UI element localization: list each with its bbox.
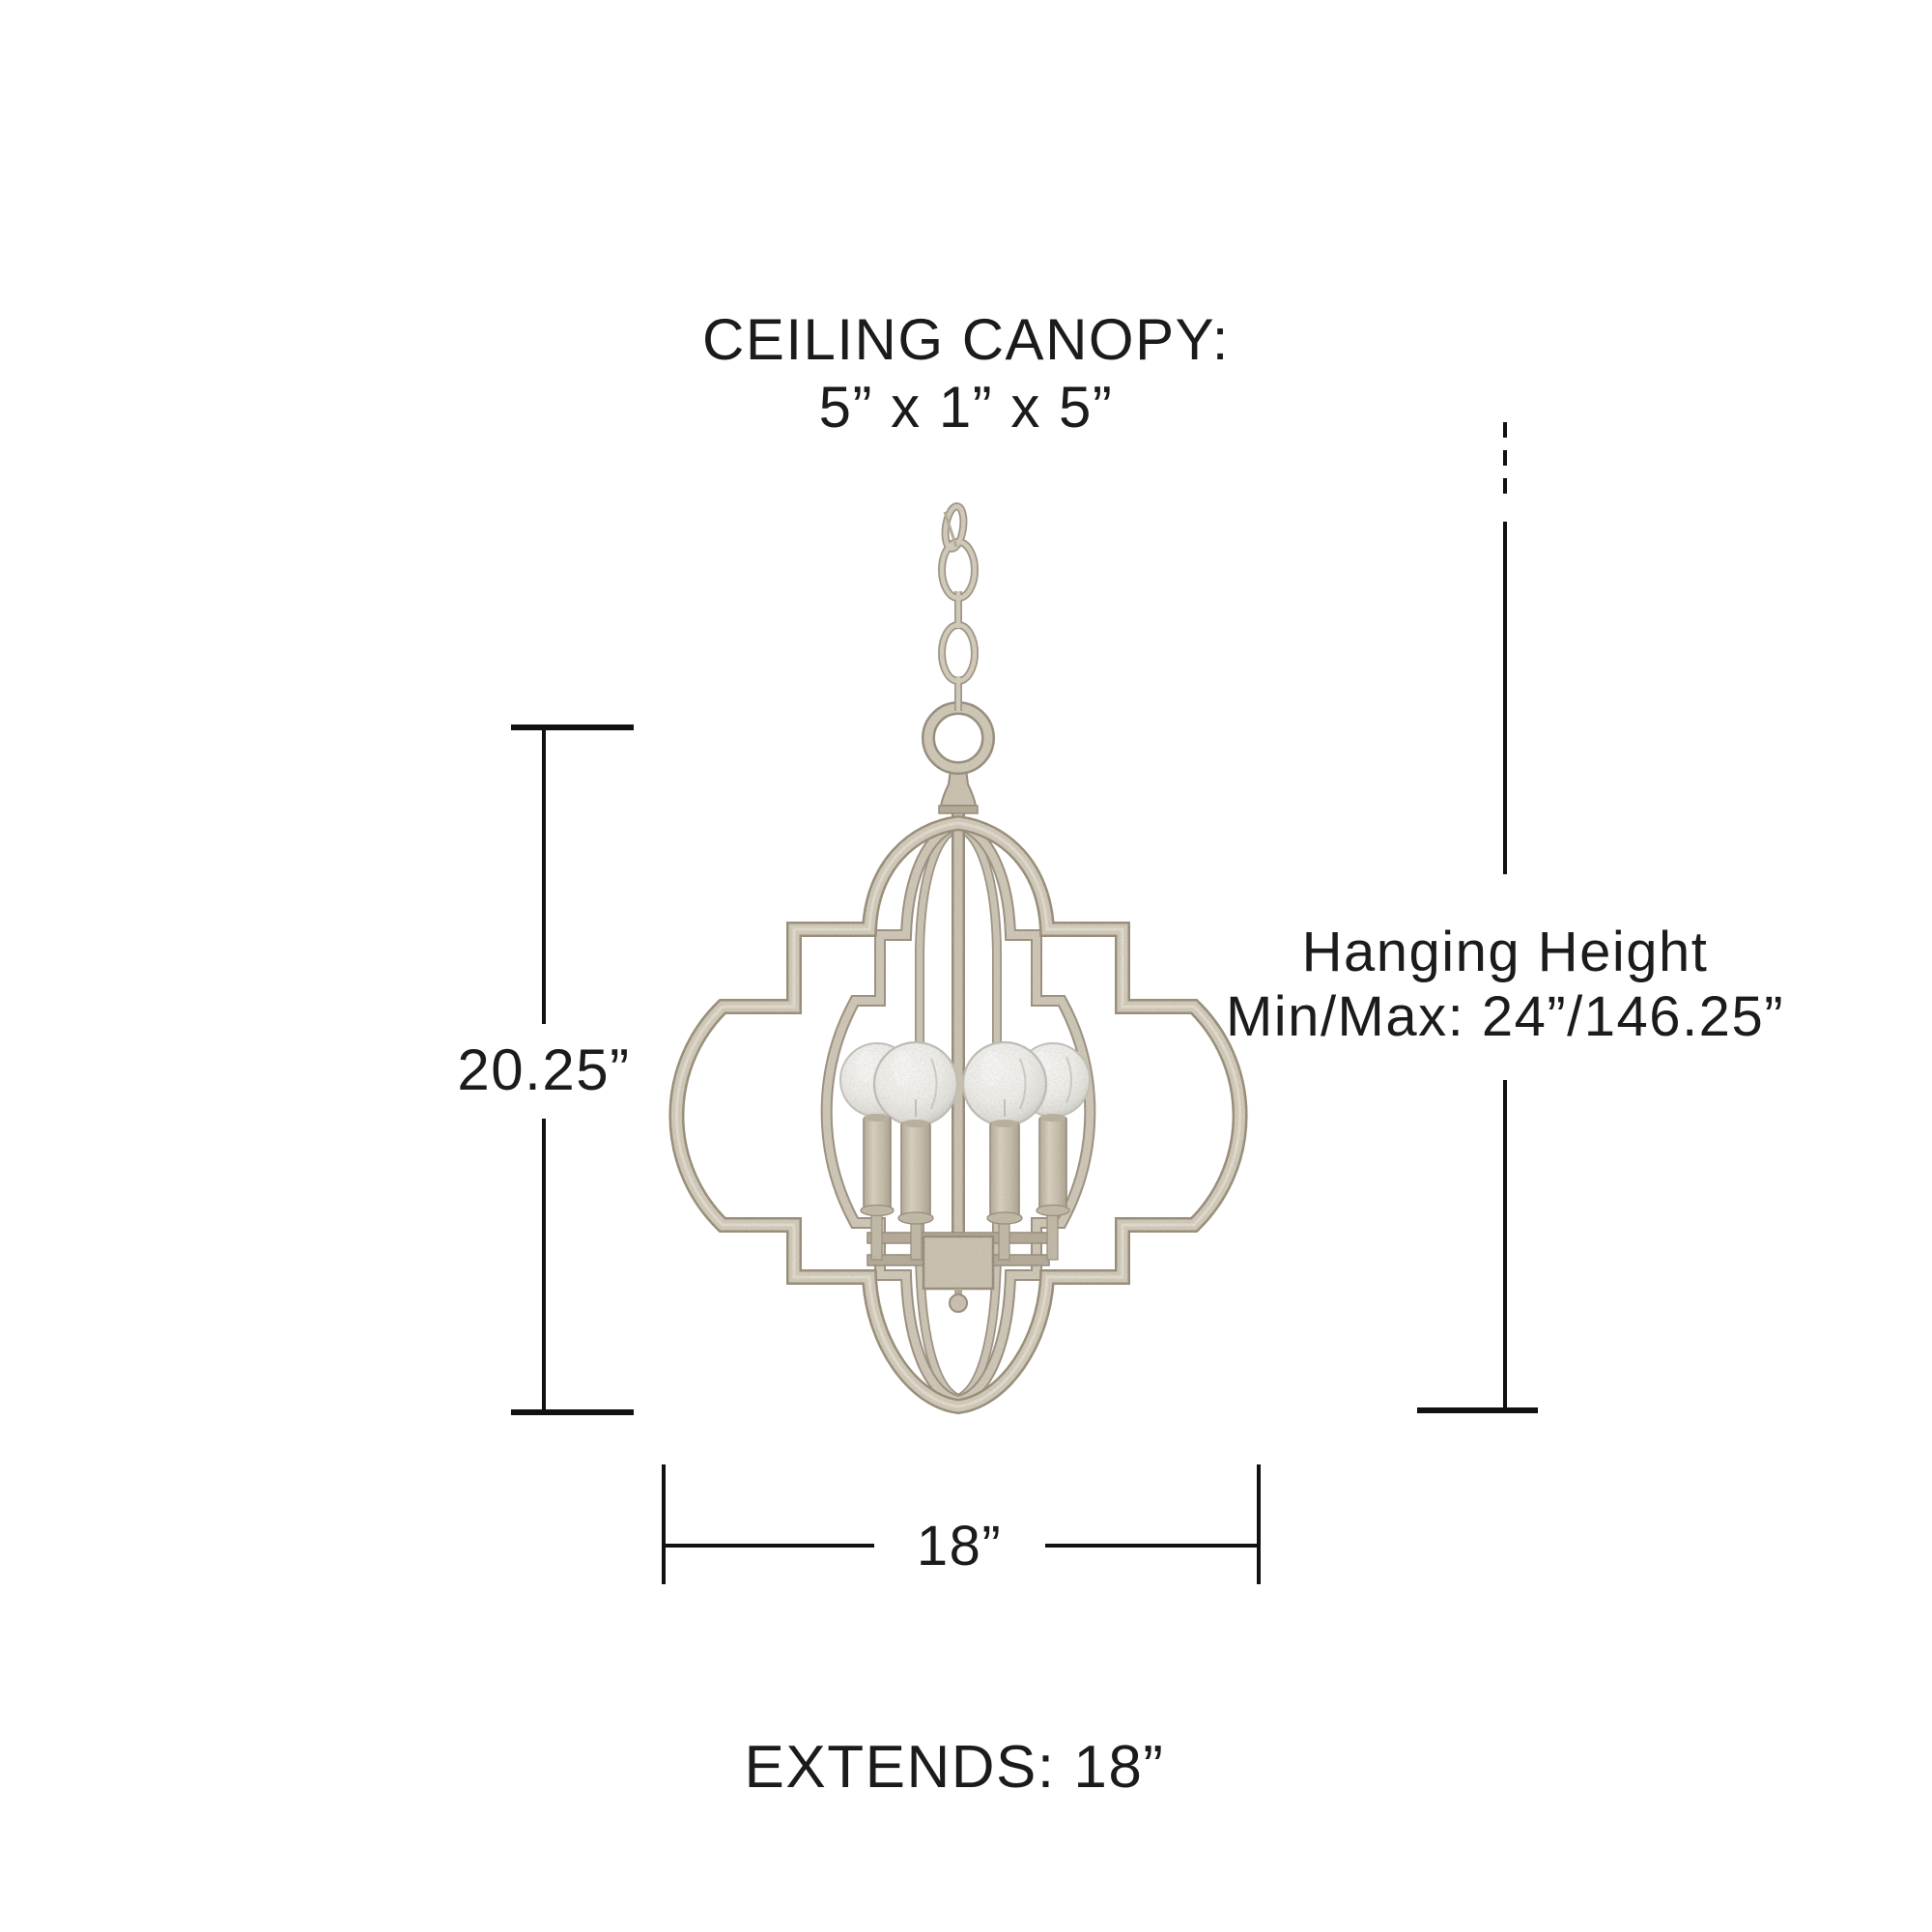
width-dimension-label: 18”: [917, 1515, 1002, 1577]
candle-sleeve: [861, 1114, 894, 1216]
hang-ring: [928, 708, 988, 768]
extends-label: EXTENDS: 18”: [745, 1734, 1165, 1801]
candle-sleeve: [987, 1120, 1022, 1224]
hanging-height-line: [1417, 422, 1538, 1410]
top-finial-collar: [939, 769, 978, 813]
pendant-diagram-canvas: 20.25” Hanging Height Min/Max: 24”/146.2…: [0, 0, 1932, 1932]
pendant-chain: [942, 505, 975, 711]
hanging-height-minmax-label: Min/Max: 24”/146.25”: [1226, 985, 1784, 1048]
product-dimension-diagram: 20.25” Hanging Height Min/Max: 24”/146.2…: [0, 0, 1932, 1932]
pendant-fixture: [676, 505, 1239, 1406]
canopy-dimensions-label: 5” x 1” x 5”: [819, 375, 1114, 440]
hanging-height-label: Hanging Height: [1302, 921, 1709, 983]
height-dimension-label: 20.25”: [457, 1037, 630, 1102]
bottom-finial-ball: [950, 1294, 967, 1312]
ceiling-canopy-label: CEILING CANOPY:: [702, 307, 1230, 372]
candle-sleeve: [1037, 1114, 1069, 1216]
light-bulb: [874, 1042, 957, 1125]
candle-sleeve: [898, 1120, 933, 1224]
light-bulb: [963, 1042, 1046, 1125]
